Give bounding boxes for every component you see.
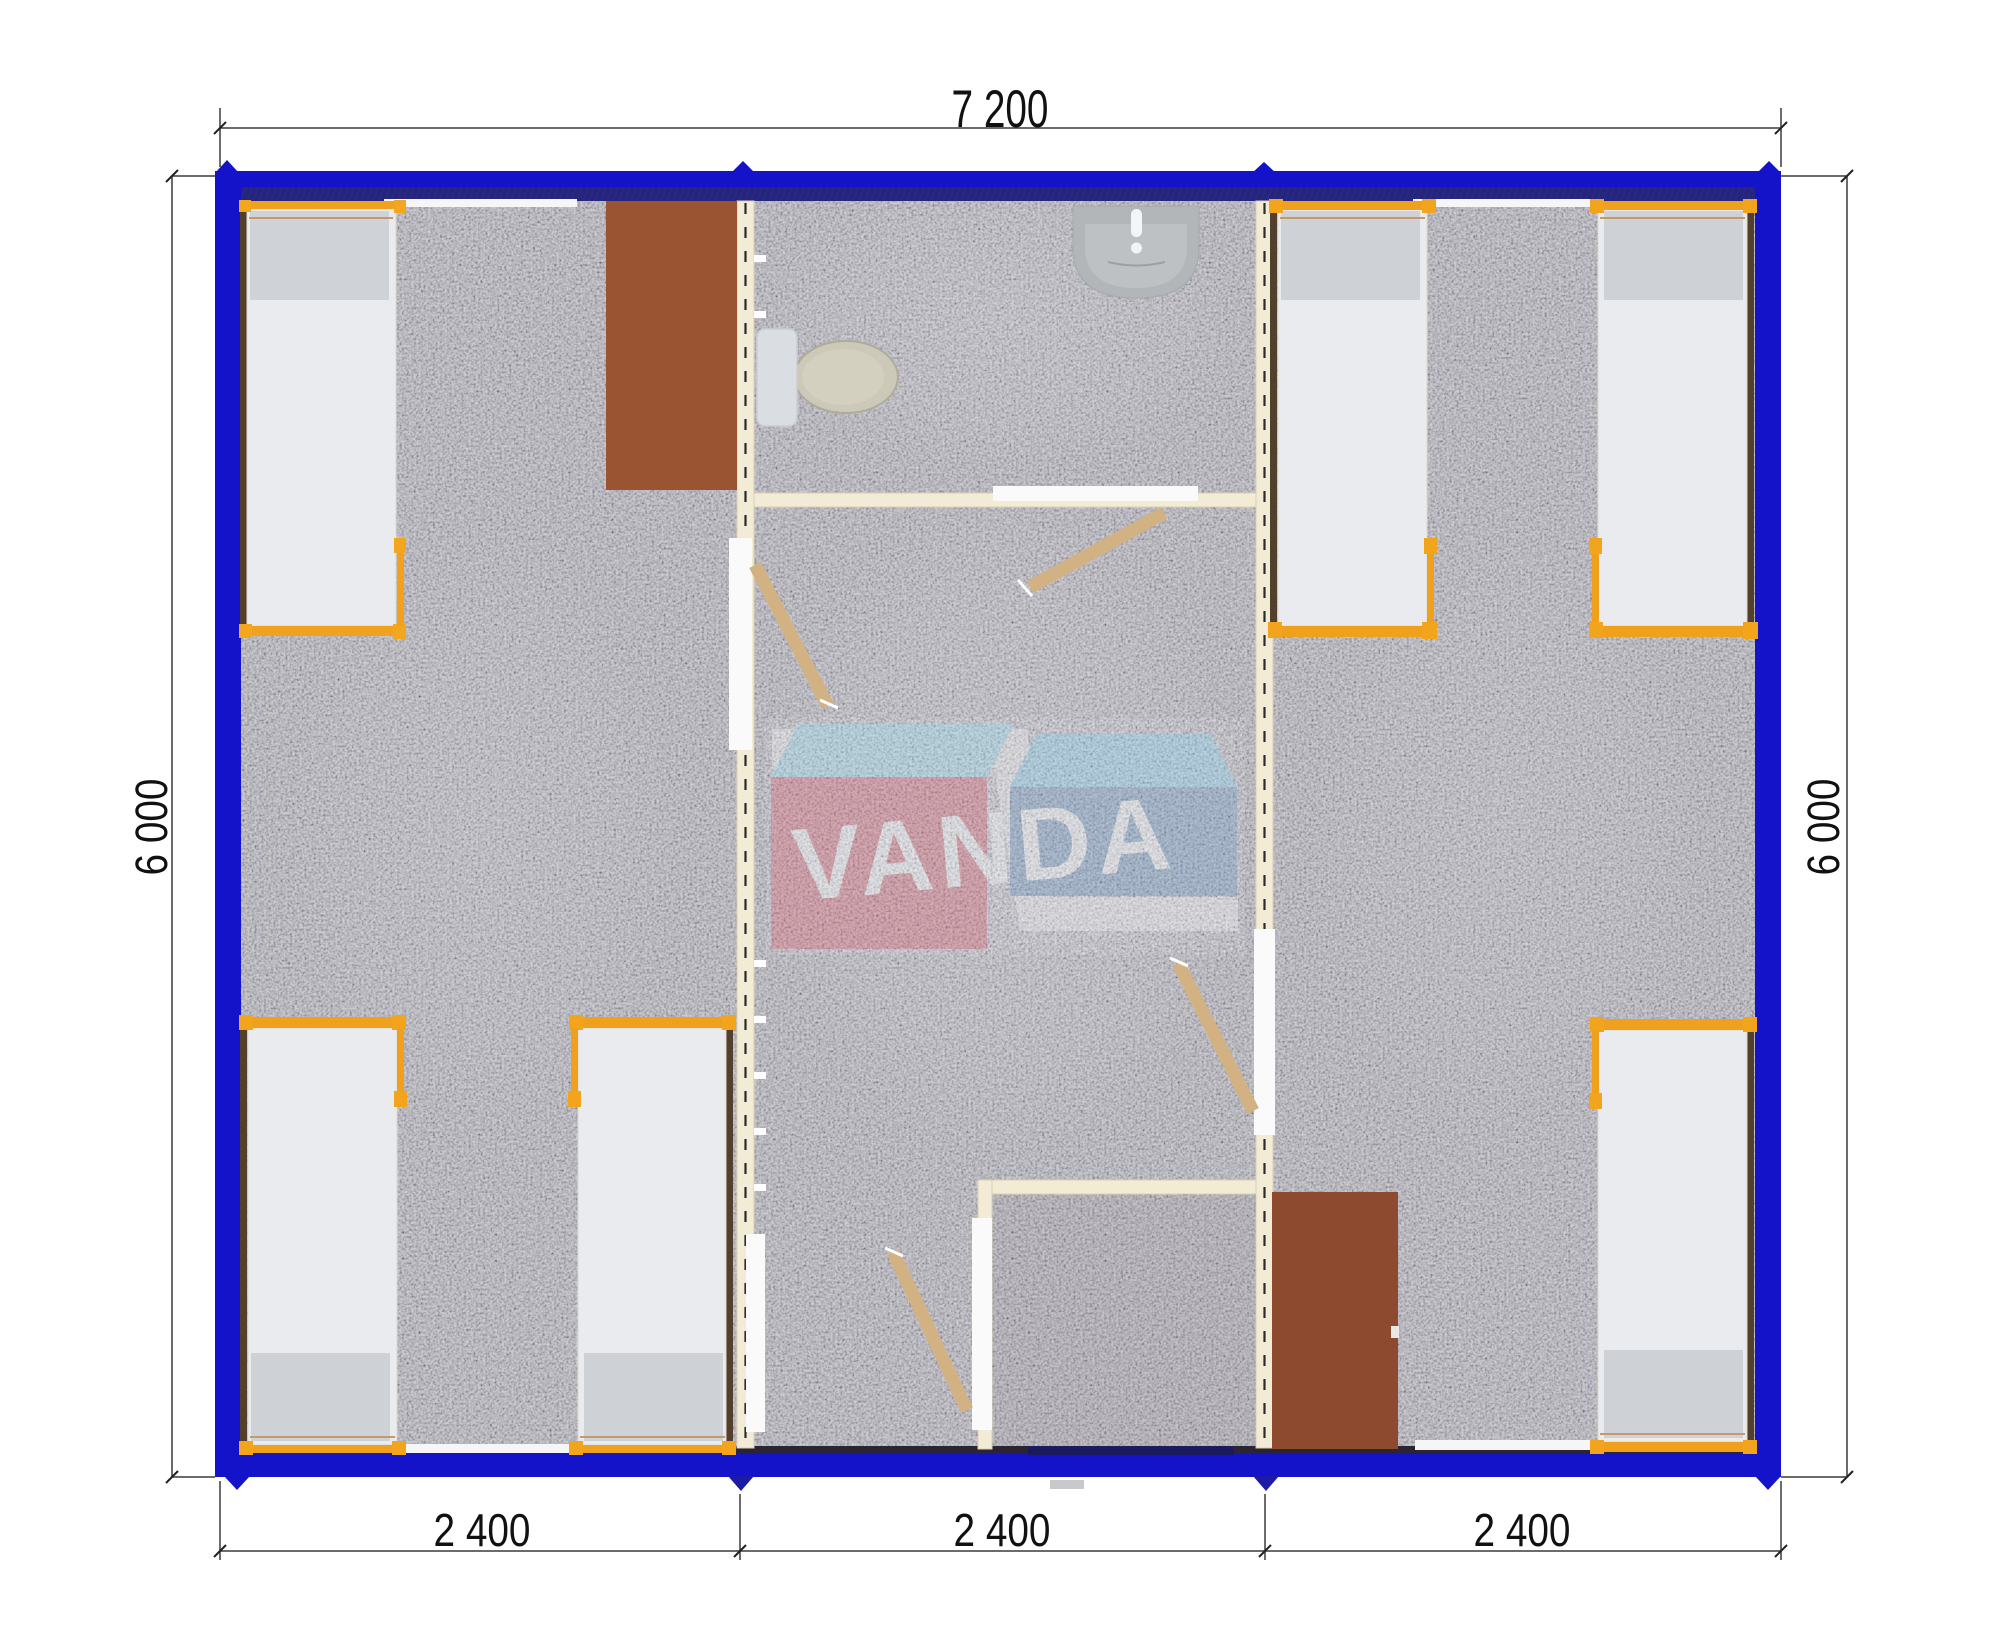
- svg-text:6 000: 6 000: [126, 779, 177, 876]
- svg-text:7 200: 7 200: [952, 80, 1049, 139]
- svg-text:2 400: 2 400: [434, 1504, 531, 1556]
- svg-text:6 000: 6 000: [1798, 779, 1849, 876]
- svg-text:2 400: 2 400: [1474, 1504, 1571, 1556]
- svg-text:2 400: 2 400: [954, 1504, 1051, 1556]
